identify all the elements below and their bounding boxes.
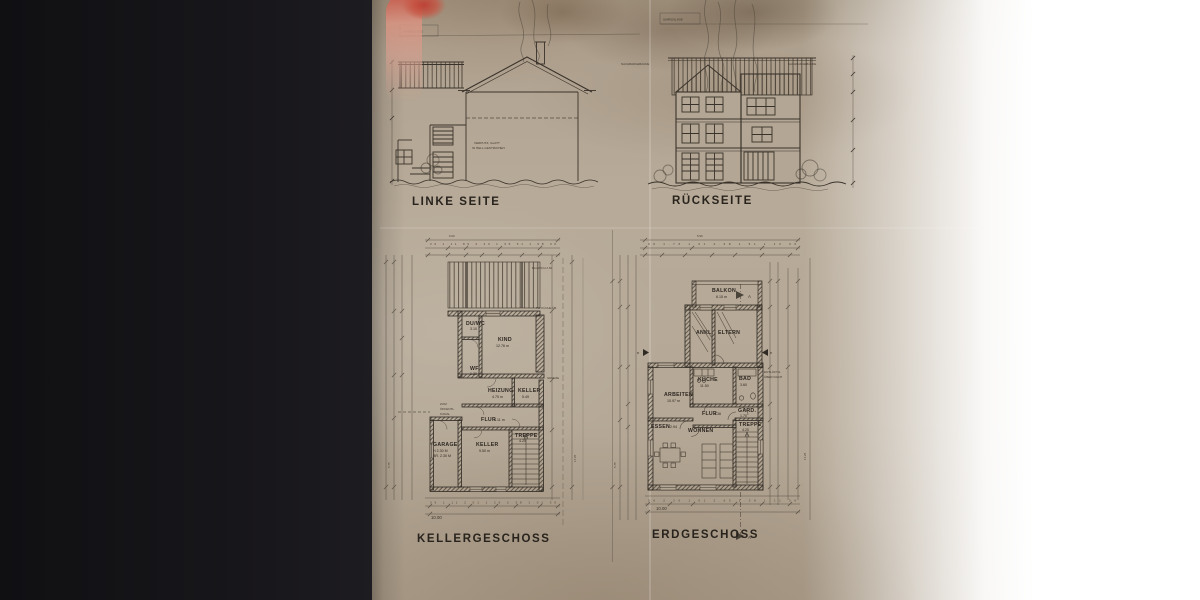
section-b-left-label: B: [637, 351, 639, 355]
basement-plan: [384, 238, 574, 516]
room-label-bad: BAD: [739, 376, 751, 382]
basement-title: KELLERGESCHOSS: [417, 533, 551, 545]
room-area-gard: 1.70: [740, 414, 747, 418]
room-label-arbeiten: ARBEITEN: [664, 392, 693, 398]
room-area-treppe-eg: 4.20: [742, 428, 749, 432]
room-label-balkon: BALKON: [712, 288, 736, 294]
room-area-heizung: 4.75 m: [492, 395, 503, 399]
room-area-arbeiten: 10.97 m: [667, 399, 680, 403]
ground-floor-plan: [610, 238, 810, 540]
section-b-right-label: B: [770, 351, 772, 355]
outline-label-right: UMRISSLINIE: [663, 18, 683, 22]
section-a-top-label: A: [748, 294, 751, 299]
kanal-note-2: ÖFFENTL.: [440, 407, 455, 411]
basement-dim-top-chain: 36 1.11 89 2.23 1.35 51 1.08 36: [430, 242, 556, 246]
elevation-back-side: [648, 55, 855, 191]
room-area-keller-small: 5.49: [522, 395, 529, 399]
back-elevation-title: RÜCKSEITE: [672, 194, 753, 207]
living-furniture: [702, 444, 733, 478]
ground-floor-title: ERDGESCHOSS: [652, 529, 759, 541]
ground-floor-stairs: [736, 432, 758, 484]
room-label-eltern: ELTERN: [718, 330, 740, 336]
basement-dim-right-side: 17.25: [573, 454, 577, 462]
basement-bauwich: BAUWICH 2.50: [532, 266, 552, 270]
ground-dim-right-side: 17.25: [803, 452, 807, 460]
section-b-marks: [643, 349, 768, 356]
left-elevation-note-2: IN HELL GESTRICHEN: [472, 146, 505, 150]
ground-dim-bottom-chain: 36 2.26 1.01 2.63 1.38 1.11 36: [648, 499, 796, 503]
basement-dim-bottom-chain: 36 1.11 2.01 1.26 2.38 1.01 36: [430, 501, 556, 505]
room-area-flur-kg: 4.11 m: [494, 418, 505, 422]
dining-furniture: [655, 443, 686, 468]
room-area-kind: 12.76 m: [496, 344, 509, 348]
left-elevation-note-1: VERPUTZ, GLATT: [474, 141, 500, 145]
room-label-keller-big: KELLER: [476, 442, 499, 448]
kanal-note-3: KANAL: [440, 412, 450, 416]
room-label-heizung: HEIZUNG: [488, 388, 513, 394]
vent-note-2: ÜBER DACH: [764, 375, 782, 379]
room-area-treppe-kg: 4.25: [519, 439, 526, 443]
garage-note-2: BR. 2.30 M: [433, 454, 451, 458]
left-elevation-title: LINKE SEITE: [412, 196, 501, 208]
outline-labels: UMRISSLINIE UMRISSLINIE: [400, 13, 700, 36]
room-area-bad: 3.60: [740, 383, 747, 387]
grenze-label: GRENZE: [547, 376, 559, 380]
photo-of-blueprint: UMRISSLINIE UMRISSLINIE: [0, 0, 1200, 600]
room-label-keller-small: KELLER: [518, 388, 541, 394]
room-label-garage: GARAGE: [433, 442, 458, 448]
pergola-plan-hatch: [448, 262, 540, 308]
blueprint-drawing: UMRISSLINIE UMRISSLINIE: [0, 0, 1200, 600]
garage-note-1: H 2.30 M: [433, 449, 448, 453]
room-label-wohnen: WOHNEN: [688, 428, 713, 434]
room-area-keller-big: 9.50 m: [479, 449, 490, 453]
room-area-flur-eg: 4.36: [714, 412, 721, 416]
room-area-kueche: 11.50: [700, 384, 709, 388]
room-label-kueche: KÜCHE: [698, 376, 718, 383]
ground-line: [390, 180, 598, 184]
basement-tw-note: TW KÜCHE ÜB.: [536, 306, 557, 310]
basement-dim-overall-top: 6.00: [449, 234, 455, 238]
ground-dim-overall-top: 5.90: [697, 234, 703, 238]
room-area-balkon: 6.15 m: [716, 295, 727, 299]
neighbor-label-right: NACHBARGEBÄUDE: [788, 62, 816, 66]
room-label-kind: KIND: [498, 337, 512, 343]
room-area-essen: 12.94: [668, 425, 677, 429]
basement-dim-overall-bottom: 10.00: [431, 515, 442, 520]
vent-note-1: ENTLÜFTG.: [764, 370, 781, 374]
annex-window: [433, 127, 453, 145]
kanal-note-1: ZUM: [440, 402, 447, 406]
basement-dim-left-side: 5.75: [387, 462, 391, 468]
room-label-ankl: ANKL.: [696, 330, 714, 336]
ground-dim-left-side: 5.75: [613, 462, 617, 468]
ground-dim-top-chain: 36 1.76 1.01 2.38 1.51 1.12 36: [648, 242, 796, 246]
roof-deck-hatch: [741, 74, 800, 95]
neighbor-label-left: NACHBARGEBÄUDE: [621, 62, 649, 66]
ground-dim-overall-bottom: 10.00: [656, 506, 667, 511]
room-area-duwc: 3.10: [470, 327, 477, 331]
balcony: [692, 281, 762, 307]
room-area-wf: 1.20: [470, 372, 477, 376]
